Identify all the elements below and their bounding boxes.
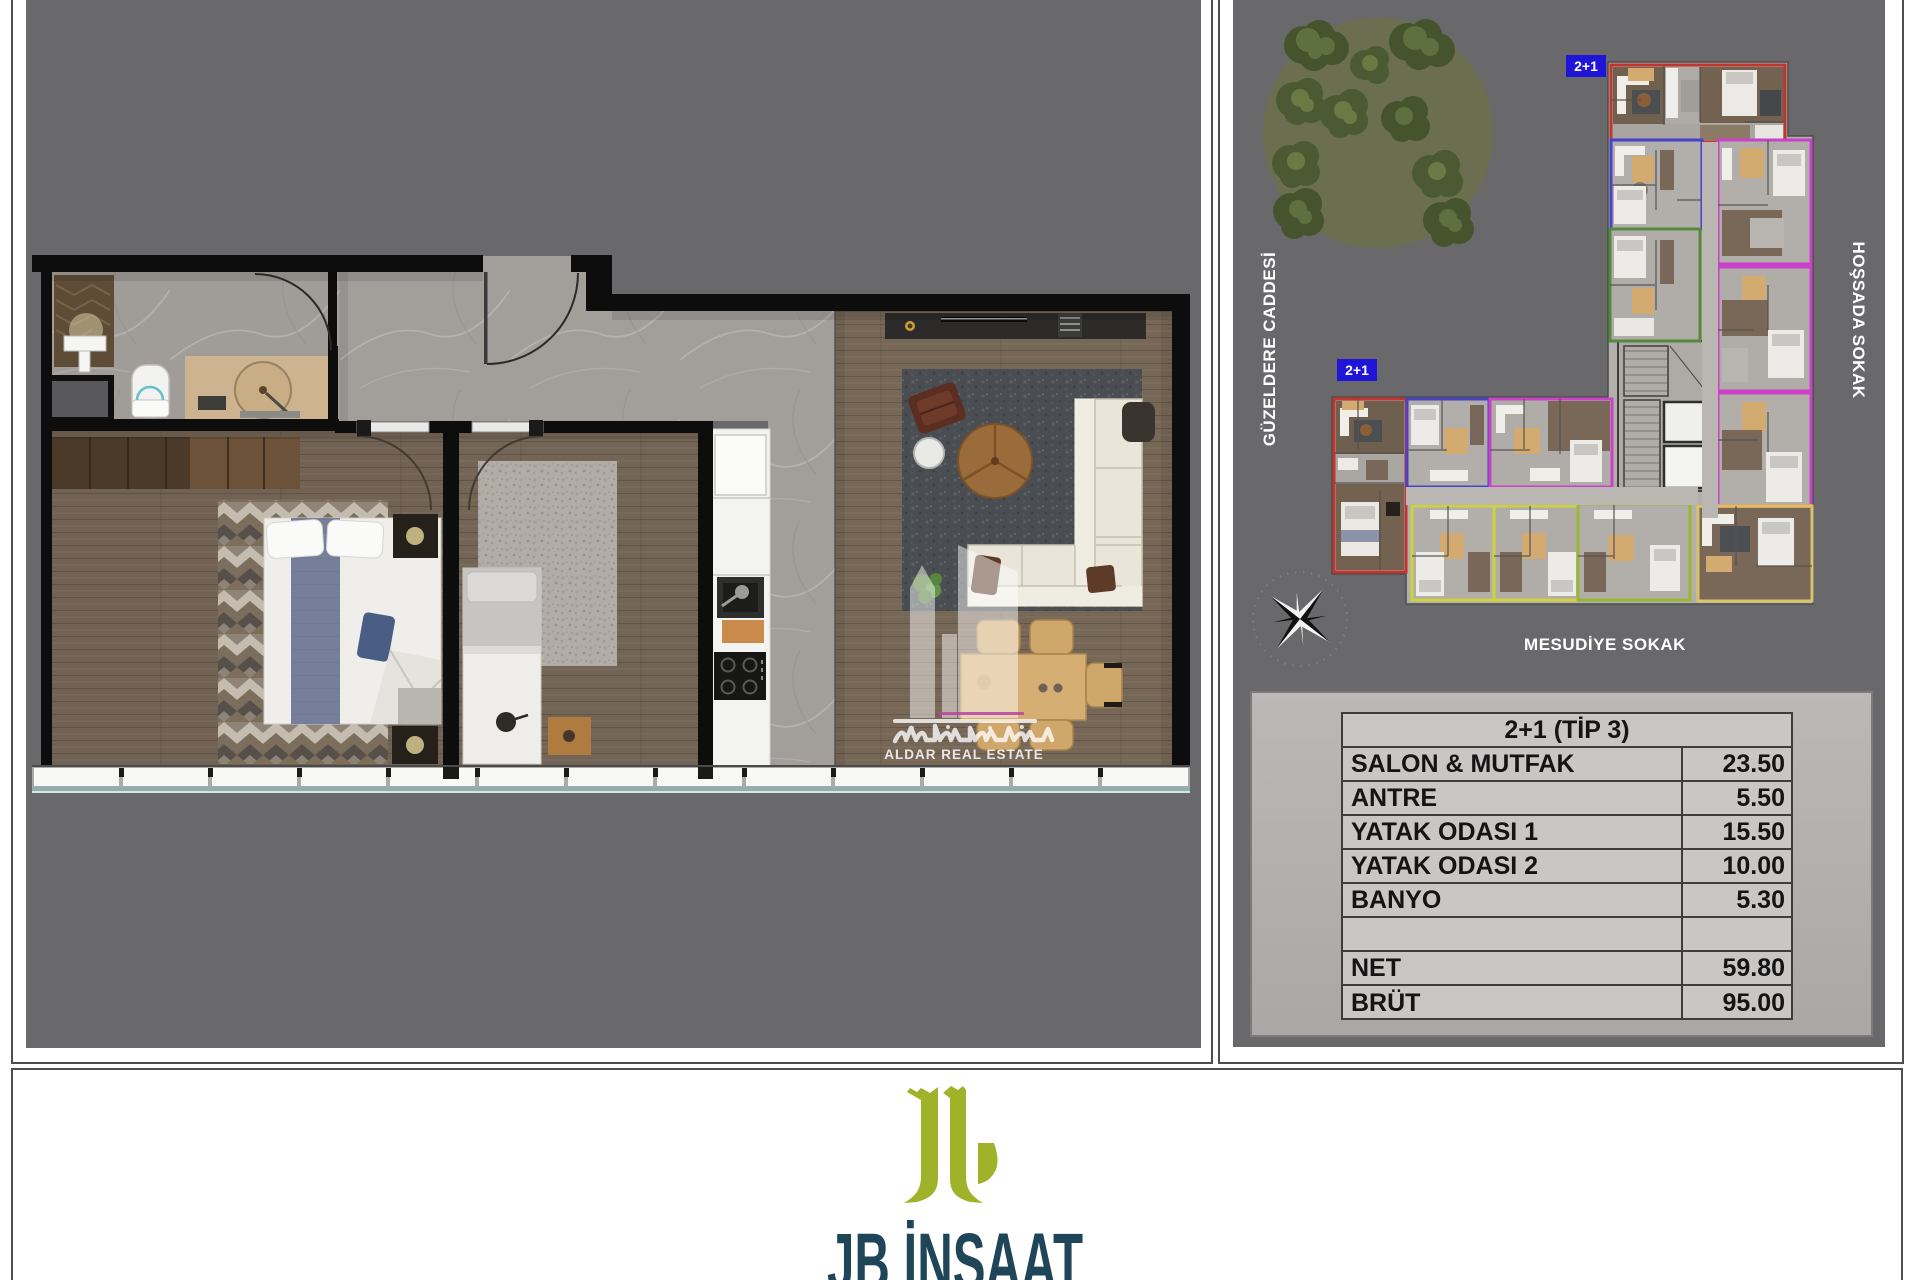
svg-text:ALDAR REAL ESTATE: ALDAR REAL ESTATE (884, 747, 1044, 762)
svg-text:2+1: 2+1 (1345, 362, 1369, 378)
svg-text:2+1: 2+1 (1574, 58, 1598, 74)
